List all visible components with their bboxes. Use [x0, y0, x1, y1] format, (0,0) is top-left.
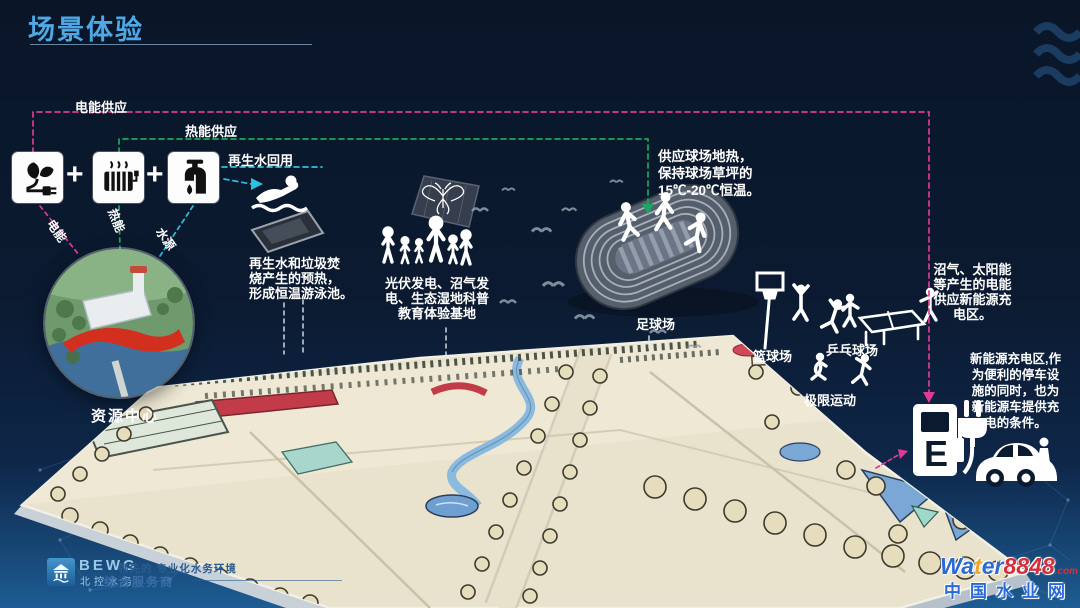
pingpong-court-label: 乒乓球场 [826, 340, 878, 359]
plus-sign: + [66, 158, 84, 192]
basketball-court-label: 篮球场 [753, 346, 792, 365]
heating-radiator-icon [93, 152, 144, 203]
heat-supply-label: 热能供应 [185, 121, 237, 140]
slide: 场景体验 + + [0, 0, 1080, 608]
bewg-logo-icon [47, 558, 75, 586]
extreme-sports-label: 极限运动 [804, 390, 856, 409]
water-faucet-icon [168, 152, 219, 203]
field-heat-annotation: 供应球场地热， 保持球场草坪的 15℃-20℃恒温。 [658, 148, 760, 199]
football-field-label: 足球场 [636, 314, 675, 333]
footer-slogan-rule [192, 580, 342, 581]
resource-center-label: 资源中心 [60, 405, 190, 426]
electric-supply-label: 电能供应 [75, 97, 127, 116]
charging-annotation: 新能源充电区,作 为便利的停车设 施的同时，也为 新能源车提供充 电的条件。 [963, 351, 1068, 431]
footer-slogan-line2: 综合服务商 [104, 573, 174, 590]
watermark-line1: Water8848.com [940, 556, 1078, 582]
watermark: Water8848.com 中国水业网 [940, 556, 1078, 602]
wetland-annotation: 光伏发电、沼气发 电、生态湿地科普 教育体验基地 [384, 276, 490, 321]
eco-energy-icon [12, 152, 63, 203]
page-title: 场景体验 [28, 8, 144, 47]
water-reuse-label: 再生水回用 [228, 150, 293, 169]
plus-sign: + [146, 158, 164, 192]
charging-station-e-label: E [916, 433, 956, 475]
pool-annotation: 再生水和垃圾焚 烧产生的预热， 形成恒温游泳池。 [249, 256, 353, 301]
watermark-line2: 中国水业网 [940, 582, 1078, 602]
resource-center-photo [45, 249, 193, 397]
title-underline [30, 44, 312, 45]
biogas-annotation: 沼气、太阳能 等产生的电能 供应新能源充 电区。 [925, 262, 1020, 322]
